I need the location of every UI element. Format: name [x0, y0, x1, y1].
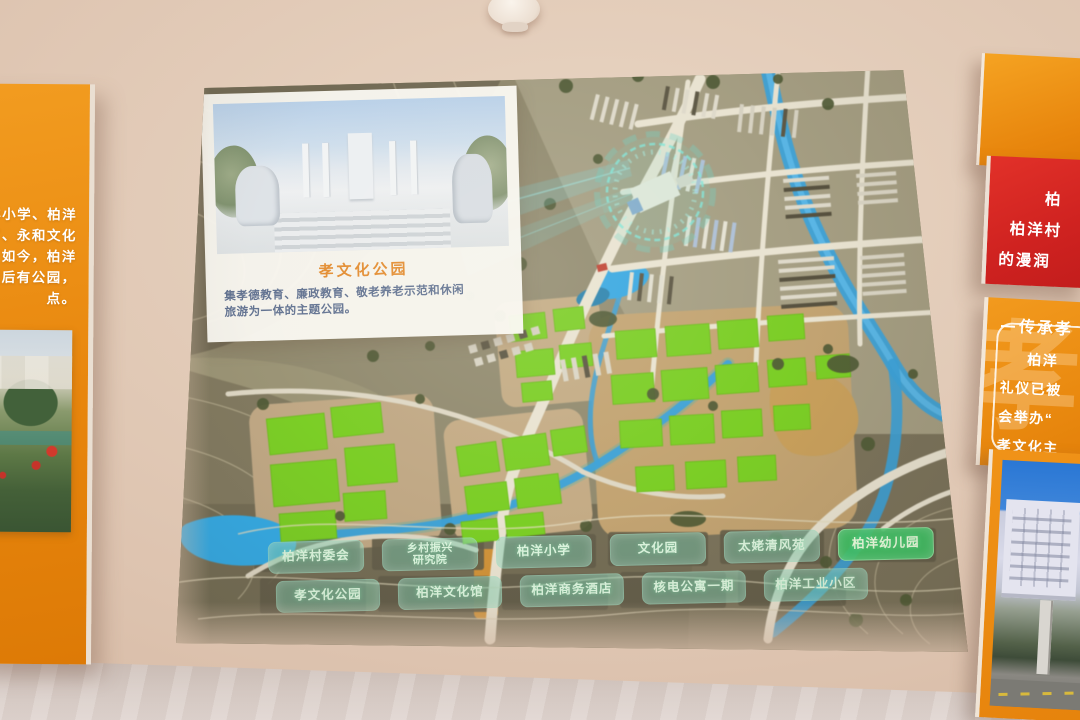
map-label-qingfeng-court: 太姥清风苑 [724, 529, 821, 563]
left-panel-line: 点。 [0, 288, 77, 310]
floor [0, 650, 1080, 720]
orange-panel-line: 柏洋 [1026, 345, 1063, 376]
map-label-culture-hall: 柏洋文化馆 [398, 576, 503, 610]
left-panel-photo [0, 330, 72, 533]
panel-title: 传承孝 [1000, 312, 1073, 340]
photo-white-building [1001, 499, 1079, 600]
inset-photo-card: 孝文化公园 集孝德教育、廉政教育、敬老养老示范和休闲 旅游为一体的主题公园。 [201, 86, 524, 343]
left-panel-line: 厂、永和文化 [0, 225, 77, 247]
right-photo-panel [975, 449, 1080, 720]
statue-right [451, 153, 494, 223]
park-steps [274, 209, 450, 253]
left-panel-line: 洋小学、柏洋 [0, 204, 77, 226]
building-photo [990, 460, 1080, 711]
red-panel-line: 的漫润 [998, 244, 1080, 279]
left-panel-text: 洋小学、柏洋 厂、永和文化 。如今，柏洋 屋后有公园， 点。 [0, 204, 77, 310]
map-label-filial-culture-park: 孝文化公园 [276, 579, 381, 613]
inset-card-description: 集孝德教育、廉政教育、敬老养老示范和休闲 旅游为一体的主题公园。 [218, 281, 511, 321]
red-panel-line: 柏 [1044, 184, 1080, 217]
projected-village-map: 孝文化公园 集孝德教育、廉政教育、敬老养老示范和休闲 旅游为一体的主题公园。 柏… [168, 64, 976, 664]
map-label-culture-garden: 文化园 [610, 532, 707, 566]
map-label-business-hotel: 柏洋商务酒店 [520, 573, 625, 607]
exhibition-wall-photo: 孝文化公园 集孝德教育、廉政教育、敬老养老示范和休闲 旅游为一体的主题公园。 柏… [0, 0, 1080, 720]
column-icon [410, 140, 418, 194]
map-label-village-committee: 柏洋村委会 [268, 540, 365, 574]
right-red-panel: 柏 柏洋村 的漫润 [981, 156, 1080, 289]
left-panel-line: 屋后有公园， [0, 267, 77, 289]
column-icon [322, 143, 330, 197]
orange-panel-line: 礼仪已被 [999, 373, 1062, 405]
map-label-primary-school: 柏洋小学 [496, 535, 593, 569]
photo-road [990, 679, 1080, 711]
photo-pond-rail [0, 431, 72, 446]
left-display-panel: 洋小学、柏洋 厂、永和文化 。如今，柏洋 屋后有公园， 点。 [0, 84, 95, 665]
memorial-gate-icon [348, 133, 373, 200]
map-label-industrial-district: 柏洋工业小区 [764, 568, 869, 602]
smoke-detector-base [502, 22, 528, 32]
statue-left [235, 165, 280, 226]
left-panel-line: 。如今，柏洋 [0, 246, 77, 268]
column-icon [302, 143, 310, 197]
park-photo [213, 96, 509, 254]
column-icon [389, 141, 397, 195]
photo-buildings [0, 356, 72, 389]
photo-gate-pillar [1036, 600, 1053, 674]
map-label-kindergarten: 柏洋幼儿园 [837, 527, 934, 561]
orange-panel-text: 柏洋 礼仪已被 会举办“ 孝文化主 [996, 344, 1064, 463]
map-label-rural-revitalization-institute: 乡村振兴 研究院 [382, 537, 479, 571]
inset-card-title: 孝文化公园 [217, 255, 509, 284]
right-orange-text-panel: 孝 传承孝 柏洋 礼仪已被 会举办“ 孝文化主 [976, 297, 1080, 471]
orange-panel-line: 会举办“ [997, 402, 1060, 434]
right-top-orange-panel [976, 53, 1080, 171]
title-dash-icon [1001, 324, 1015, 327]
map-label-nuclear-apartments: 核电公寓一期 [642, 570, 747, 604]
red-panel-line: 柏洋村 [1009, 214, 1080, 249]
